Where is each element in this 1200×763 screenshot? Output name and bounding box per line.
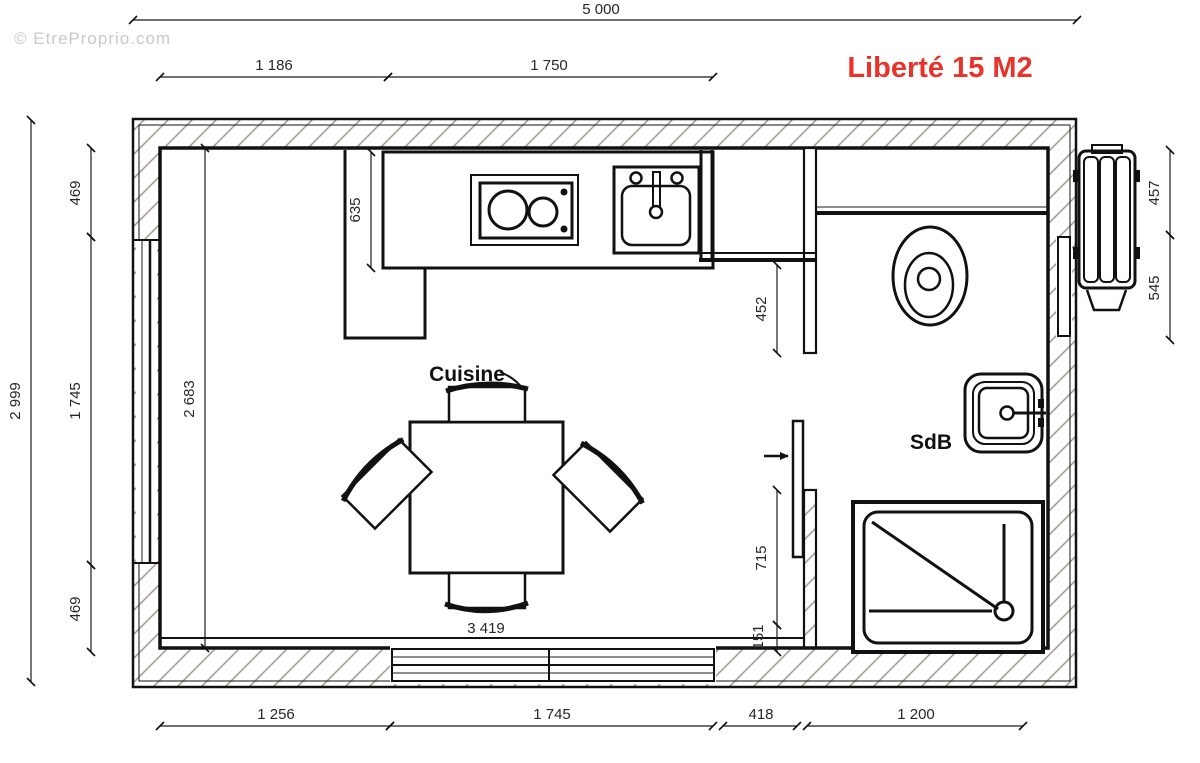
dim-left-bottom-value: 469 — [67, 596, 84, 621]
dim-bath-upper-value: 452 — [753, 296, 770, 321]
right-wall-window — [1056, 236, 1072, 337]
dim-bottom-wall-left-value: 1 256 — [257, 706, 295, 723]
plan-title: Liberté 15 M2 — [847, 52, 1032, 84]
chair-right — [551, 438, 647, 534]
dim-bath-upper: 452 — [753, 265, 777, 353]
dim-total-height-value: 2 999 — [7, 382, 24, 420]
shower-symbol — [853, 502, 1043, 652]
watermark: © EtreProprio.com — [14, 29, 171, 48]
dim-bottom-window-value: 1 745 — [533, 706, 571, 723]
dim-left-bottom: 469 — [67, 565, 91, 652]
dim-bath-lower-value: 151 — [750, 624, 767, 649]
dim-counter-depth-value: 635 — [347, 197, 364, 222]
dim-heater-top: 457 — [1146, 150, 1170, 235]
dim-heater-bottom-value: 545 — [1146, 275, 1163, 300]
sliding-door — [793, 421, 803, 557]
left-wall-window — [134, 240, 159, 563]
chair-left — [338, 435, 434, 531]
water-heater-symbol — [1073, 145, 1140, 310]
dim-left-window-value: 1 745 — [67, 382, 84, 420]
dim-total-width-value: 5 000 — [582, 1, 620, 18]
dim-bottom-window: 1 745 — [390, 706, 713, 726]
floor-plan-page: 5 000 1 186 1 750 2 999 469 1 745 469 2 … — [0, 0, 1200, 763]
dim-bath-door: 715 — [753, 490, 777, 625]
dim-left-window: 1 745 — [67, 237, 91, 565]
dim-left-top: 469 — [67, 148, 91, 237]
dim-bottom-wall-left: 1 256 — [160, 706, 390, 726]
dim-top-left-value: 1 186 — [255, 57, 293, 74]
washbasin-symbol — [965, 374, 1046, 452]
toilet-symbol — [893, 227, 967, 325]
chair-top — [446, 384, 528, 422]
bottom-window — [390, 646, 716, 684]
closet — [699, 150, 816, 260]
dim-heater-bottom: 545 — [1146, 235, 1170, 340]
dim-top-left-segment: 1 186 — [160, 57, 388, 77]
bathroom-label: SdB — [910, 431, 952, 454]
bathroom-shelf — [816, 207, 1048, 213]
dim-bottom-bath-value: 1 200 — [897, 706, 935, 723]
dim-left-top-value: 469 — [67, 180, 84, 205]
dim-counter-width: 1 750 — [388, 57, 713, 77]
dim-bottom-bath: 1 200 — [807, 706, 1023, 726]
dim-bottom-door: 418 — [723, 706, 797, 726]
dim-interior-height-value: 2 683 — [181, 380, 198, 418]
cooktop-symbol — [471, 175, 578, 245]
kitchen-label: Cuisine — [429, 363, 505, 386]
dim-bottom-door-value: 418 — [748, 706, 773, 723]
dim-table-zone-value: 3 419 — [467, 620, 505, 637]
kitchen-sink-symbol — [614, 167, 699, 253]
dim-counter-depth: 635 — [347, 152, 371, 268]
dim-counter-width-value: 1 750 — [530, 57, 568, 74]
bathroom-partition-wall — [804, 148, 816, 648]
dining-table — [410, 422, 563, 573]
dim-total-width: 5 000 — [133, 1, 1077, 20]
dim-total-height: 2 999 — [7, 120, 31, 682]
chair-bottom — [445, 573, 528, 611]
floor-plan-drawing: 5 000 1 186 1 750 2 999 469 1 745 469 2 … — [0, 0, 1200, 763]
dim-bath-door-value: 715 — [753, 545, 770, 570]
dim-interior-height: 2 683 — [181, 148, 205, 648]
dim-heater-top-value: 457 — [1146, 180, 1163, 205]
